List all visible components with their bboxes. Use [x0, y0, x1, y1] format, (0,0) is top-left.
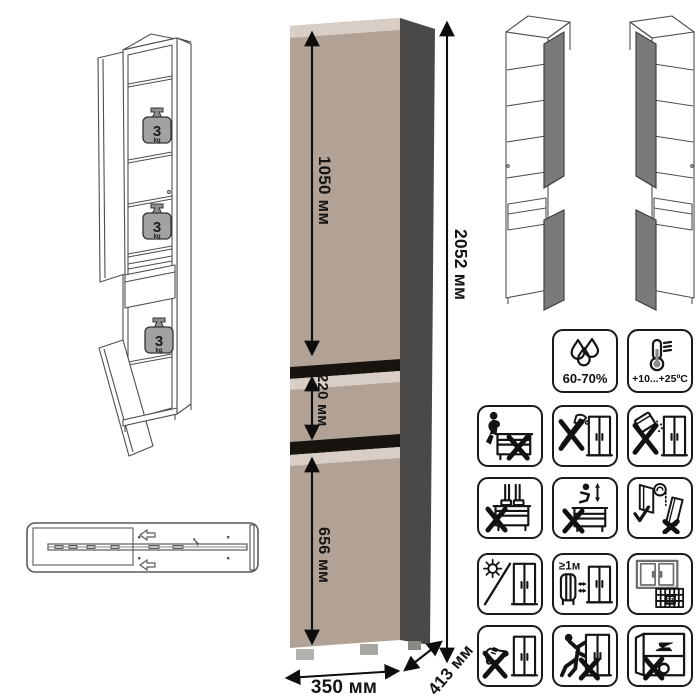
- room-ventilation-tile: 21: [627, 553, 693, 615]
- dim-bottom-door-height: 656 мм: [314, 500, 332, 610]
- no-sharp-tools-icon: [557, 410, 613, 462]
- dim-top-door-height: 1050 мм: [314, 108, 334, 273]
- no-sitting-icon: [482, 410, 538, 462]
- cabinet-3d-render: [283, 10, 483, 700]
- no-abrasive-powder-icon: [632, 410, 688, 462]
- heater-clearance-icon: ≥1м: [557, 558, 613, 610]
- humidity-label: 60-70%: [563, 372, 608, 385]
- door-adjustment-icon: [632, 482, 688, 534]
- no-jumping-tile: [552, 477, 618, 539]
- no-sharp-tools-tile: [552, 405, 618, 467]
- no-standing-tile: [477, 477, 543, 539]
- svg-text:kg: kg: [155, 348, 162, 354]
- room-ventilation-icon: 21: [632, 558, 688, 610]
- no-shoe-push-tile: [477, 625, 543, 687]
- no-shoe-push-icon: [482, 630, 538, 682]
- drawer-slide-diagram: [25, 515, 265, 580]
- no-abrasive-powder-tile: [627, 405, 693, 467]
- wireframe-variant: [506, 16, 570, 310]
- upper-door-panel: [544, 32, 564, 188]
- weight-unit: kg: [153, 138, 160, 144]
- cabinet-side: [400, 18, 435, 645]
- svg-text:kg: kg: [153, 234, 160, 240]
- no-sitting-tile: [477, 405, 543, 467]
- no-standing-icon: [482, 482, 538, 534]
- wireframe-open-cabinet: 3 kg 3 kg 3 kg: [95, 12, 200, 462]
- wireframe-variant-mirrored: [630, 16, 694, 310]
- no-dragging-tile: [552, 625, 618, 687]
- no-heavy-items-icon: [632, 630, 688, 682]
- calendar-day-label: 21: [667, 598, 674, 604]
- dim-width: 350 мм: [288, 677, 400, 699]
- dim-drawer-height: 220 мм: [314, 364, 331, 436]
- door-adjustment-tile: [627, 477, 693, 539]
- heater-clearance-tile: ≥1м: [552, 553, 618, 615]
- no-heavy-items-tile: [627, 625, 693, 687]
- door-orientation-variants: [500, 8, 700, 313]
- no-jumping-icon: [557, 482, 613, 534]
- furniture-spec-sheet: 3 kg 3 kg 3 kg: [0, 0, 700, 700]
- dim-total-height: 2052 мм: [450, 212, 471, 317]
- heater-clearance-label: ≥1м: [559, 561, 580, 573]
- bottom-door-front: [290, 447, 400, 648]
- thermometer-icon: [645, 338, 675, 372]
- temperature-tile: +10...+25ºC: [627, 329, 693, 393]
- no-direct-sunlight-tile: [477, 553, 543, 615]
- open-top-door: [98, 52, 125, 282]
- no-direct-sunlight-icon: [482, 558, 538, 610]
- top-door-front: [290, 18, 400, 367]
- temperature-label: +10...+25ºC: [632, 374, 688, 385]
- water-drops-icon: [566, 338, 604, 370]
- humidity-tile: 60-70%: [552, 329, 618, 393]
- cabinet-side-panel: [177, 38, 191, 414]
- no-dragging-icon: [557, 630, 613, 682]
- lower-door-panel: [544, 210, 564, 310]
